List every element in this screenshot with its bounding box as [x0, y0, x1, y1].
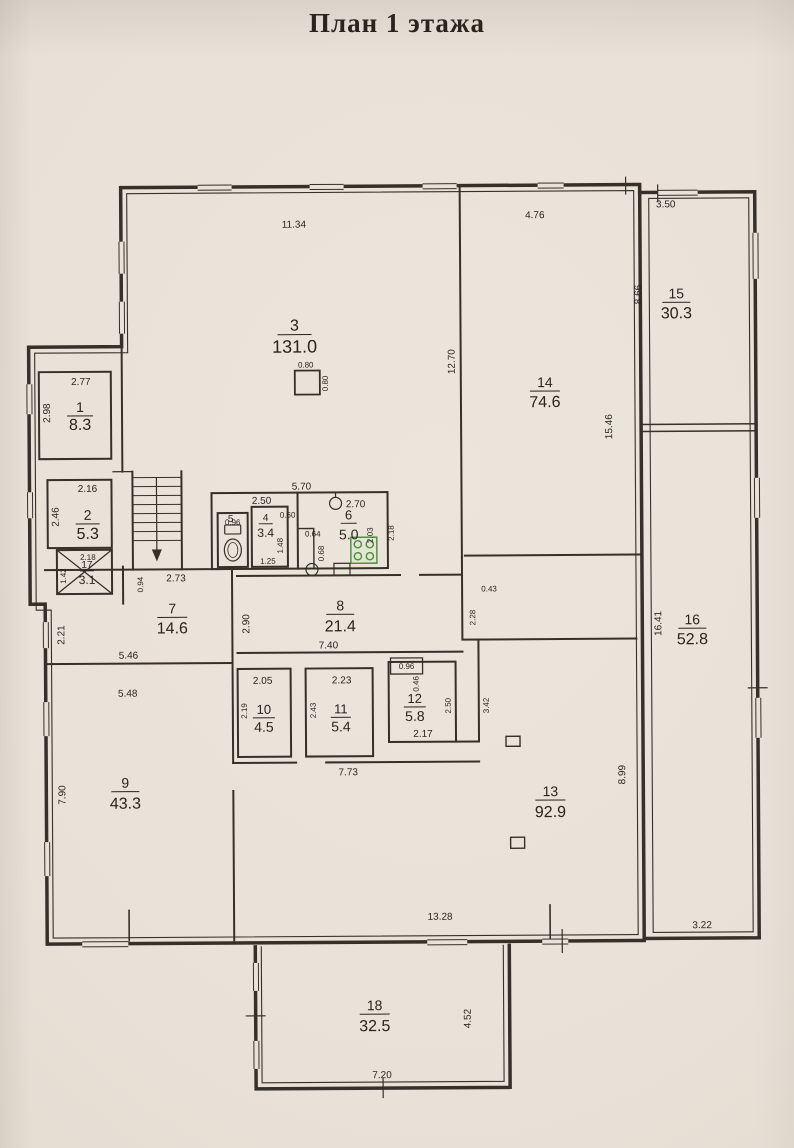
dim-room12-niche: 0.46 [412, 676, 421, 692]
dim-room16-bottom: 3.22 [692, 920, 712, 931]
toilet-icon [224, 525, 241, 561]
room-4-number: 4 [263, 513, 269, 524]
room-9-area: 43.3 [110, 796, 141, 813]
room-6-area: 5.0 [339, 526, 359, 542]
stair-arrow-icon [152, 549, 162, 561]
room-15-number: 15 [668, 285, 684, 301]
dim-room6-top: 2.70 [346, 499, 366, 510]
floor-plan: 1 8.3 2 5.3 3 131.0 4 3.4 5 6 5.0 7 14.6… [0, 0, 794, 1148]
dim-room3-top: 11.34 [282, 220, 307, 231]
dim-room13-right: 8.99 [617, 764, 628, 784]
staircase [132, 477, 182, 561]
room-14-number: 14 [537, 374, 553, 390]
room-10-area: 4.5 [254, 719, 274, 735]
hatch-icon [506, 736, 520, 746]
dim-room2-left: 2.46 [51, 507, 62, 527]
column-icon [295, 370, 320, 394]
dim-room1-top: 2.77 [71, 377, 91, 388]
dim-corridor7-top: 2.73 [166, 573, 186, 584]
room-12-number: 12 [407, 691, 422, 706]
room-11-area: 5.4 [331, 718, 351, 734]
room-9-number: 9 [121, 775, 129, 791]
room-4-area: 3.4 [257, 526, 274, 540]
room-13-area: 92.9 [535, 804, 566, 821]
sink-icon [330, 492, 342, 509]
room-2-area: 5.3 [77, 526, 99, 543]
room-2-number: 2 [84, 507, 92, 523]
dim-column-w: 0.80 [298, 361, 314, 370]
room-1-area: 8.3 [69, 417, 91, 434]
dim-room7-bottom: 5.46 [119, 651, 139, 662]
dim-room13-bottom: 13.28 [428, 912, 454, 923]
room-labels: 1 8.3 2 5.3 3 131.0 4 3.4 5 6 5.0 7 14.6… [66, 285, 710, 1037]
room-17-area: 3.1 [79, 573, 96, 587]
dim-room12-right: 2.50 [444, 697, 453, 713]
dim-room10-left: 2.19 [240, 703, 249, 719]
dim-door4-top: 0.60 [280, 511, 296, 520]
dim-room12-top: 0.96 [399, 662, 415, 671]
room-12-area: 5.8 [405, 708, 425, 724]
dim-room6-right-inner: 2.03 [366, 527, 375, 543]
room-16-area: 52.8 [677, 631, 708, 648]
room-7-number: 7 [168, 600, 176, 616]
dim-room11-top: 2.23 [332, 675, 352, 686]
room-15-area: 30.3 [661, 305, 692, 322]
dim-room12-bottom: 2.17 [413, 729, 433, 740]
dim-room7-left: 2.21 [56, 625, 67, 645]
dim-room6-inner-h: 0.68 [317, 545, 326, 561]
room-14-area: 74.6 [529, 394, 560, 411]
dim-corridor13-top: 7.73 [338, 767, 358, 778]
dim-room5-top: 0.96 [225, 518, 241, 527]
dim-room17-top: 2.18 [80, 553, 96, 562]
room-8-area: 21.4 [325, 618, 356, 635]
room-3-number: 3 [290, 318, 299, 335]
room-11-number: 11 [334, 701, 348, 716]
dim-room12-gap: 3.42 [482, 697, 491, 713]
dim-room4-right: 1.48 [276, 537, 285, 553]
dim-room17-left: 1.42 [59, 568, 68, 584]
room-8-number: 8 [336, 597, 344, 613]
dim-room18-bottom: 7.20 [372, 1070, 392, 1081]
room-18-area: 32.5 [359, 1018, 390, 1035]
room-10-number: 10 [257, 702, 272, 717]
dim-midblock-top: 5.70 [292, 482, 312, 493]
dim-column-h: 0.80 [321, 375, 330, 391]
dim-room11-left: 2.43 [309, 702, 318, 718]
dim-room2-top: 2.16 [78, 484, 98, 495]
hatch-icon [511, 837, 525, 848]
dim-room4-door: 1.25 [260, 557, 276, 566]
dim-room8-bottom: 7.40 [319, 640, 339, 651]
dim-room3-right: 12.70 [447, 349, 458, 375]
dim-room1-left: 2.98 [42, 403, 53, 423]
outer-walls [28, 184, 760, 1090]
dim-corridor7-left: 0.94 [136, 576, 145, 592]
dim-room6-inner-w: 0.64 [305, 529, 321, 538]
dim-room15-top: 3.50 [656, 199, 676, 210]
dim-gap8-right: 2.28 [468, 609, 477, 625]
room-3-area: 131.0 [272, 336, 317, 356]
dim-room9-left: 7.90 [57, 785, 68, 805]
dim-room15-left: 8.66 [633, 284, 644, 304]
dim-room8-left: 2.90 [241, 614, 252, 634]
dim-room18-right: 4.52 [463, 1008, 474, 1028]
dimension-labels: 11.34 4.76 3.50 8.66 12.70 15.46 2.77 2.… [41, 199, 714, 1083]
room-1-number: 1 [76, 399, 84, 415]
dim-room14-top: 4.76 [525, 210, 545, 221]
dim-room16-left: 16.41 [653, 610, 664, 636]
dim-room9-top: 5.48 [118, 689, 138, 700]
dim-room14-right: 15.46 [604, 414, 615, 440]
room-13-number: 13 [542, 783, 558, 799]
room-7-area: 14.6 [157, 620, 188, 637]
scanned-page: План 1 этажа [0, 0, 794, 1148]
dim-room6-right-outer: 2.18 [387, 525, 396, 541]
room-18-number: 18 [367, 997, 383, 1013]
room-16-number: 16 [684, 611, 700, 627]
dim-room4-top: 2.50 [252, 496, 272, 507]
dim-gap8-top: 0.43 [481, 584, 497, 593]
dim-room10-top: 2.05 [253, 676, 273, 687]
fixtures [223, 369, 524, 850]
